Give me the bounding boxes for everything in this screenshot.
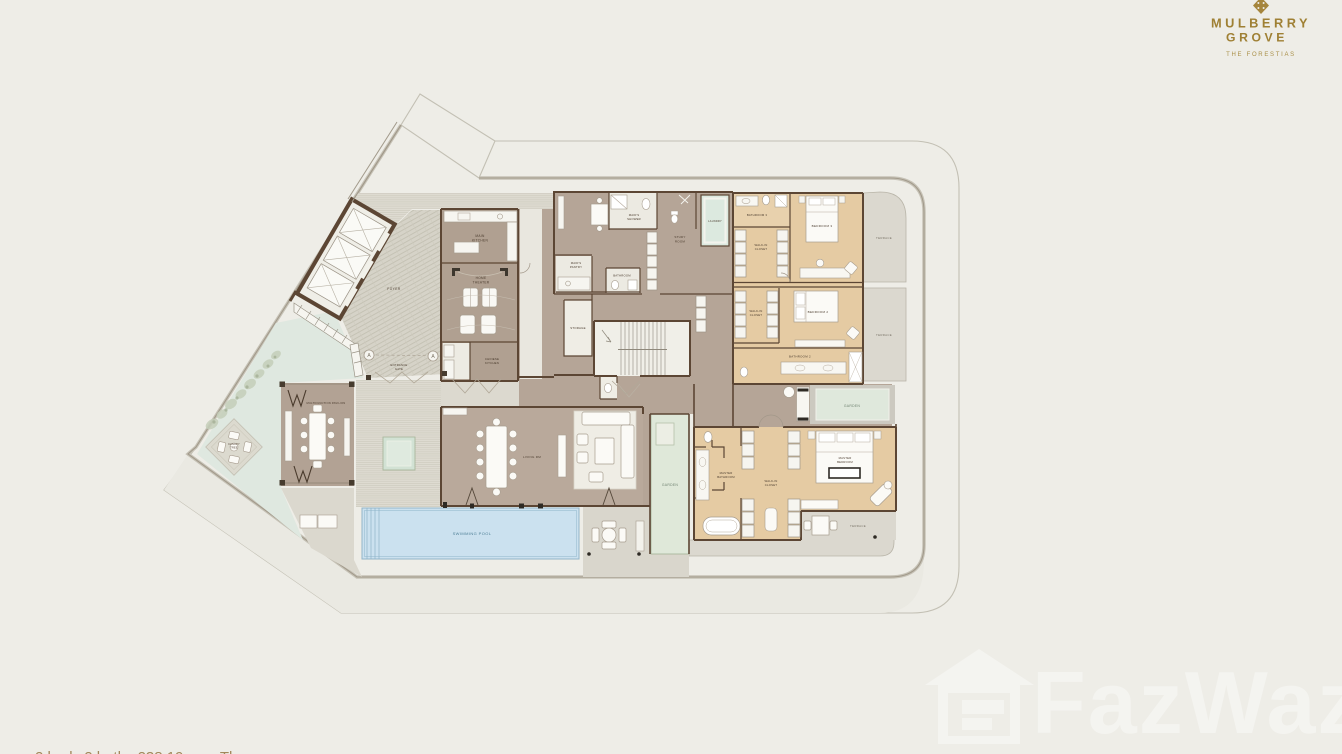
svg-text:CLOSET: CLOSET <box>750 313 762 317</box>
svg-text:BATHROOM 3: BATHROOM 3 <box>747 213 768 217</box>
svg-text:THEATER: THEATER <box>473 281 490 285</box>
svg-text:BEDROOM: BEDROOM <box>837 460 853 464</box>
svg-text:STORAGE: STORAGE <box>570 326 585 330</box>
svg-text:ROOM: ROOM <box>675 240 685 244</box>
svg-text:GARDEN: GARDEN <box>844 404 861 408</box>
svg-text:SHOWER: SHOWER <box>627 217 641 221</box>
svg-text:TREE: TREE <box>230 447 238 450</box>
svg-text:PANTRY: PANTRY <box>570 265 582 269</box>
svg-text:BATHROOM 2: BATHROOM 2 <box>789 355 811 359</box>
svg-text:KITCHEN: KITCHEN <box>485 361 499 365</box>
svg-text:TERRACE: TERRACE <box>876 236 892 240</box>
svg-text:HOME: HOME <box>476 276 487 280</box>
svg-text:MULTIFUNCTION PAVILION: MULTIFUNCTION PAVILION <box>307 401 346 405</box>
svg-text:THE FORESTIAS: THE FORESTIAS <box>1226 52 1296 58</box>
svg-text:GATE: GATE <box>395 367 403 371</box>
svg-text:FOYER: FOYER <box>387 287 401 291</box>
svg-text:LAUNDRY: LAUNDRY <box>708 219 722 223</box>
svg-text:MULBERRY: MULBERRY <box>1211 16 1311 31</box>
svg-text:BEDROOM 2: BEDROOM 2 <box>808 310 829 314</box>
svg-text:BATHROOM: BATHROOM <box>613 274 631 278</box>
svg-text:TERRACE: TERRACE <box>850 524 866 528</box>
svg-text:2 beds 2 baths 238.19 sqm: 2 beds 2 baths 238.19 sqm Th <box>35 749 237 754</box>
svg-text:TERRACE: TERRACE <box>876 333 892 337</box>
svg-text:BATHROOM: BATHROOM <box>717 475 735 479</box>
svg-text:CLOSET: CLOSET <box>755 247 767 251</box>
svg-text:GROVE: GROVE <box>1226 31 1288 45</box>
svg-text:BEDROOM 3: BEDROOM 3 <box>812 224 833 228</box>
svg-text:GARDEN: GARDEN <box>662 483 679 487</box>
svg-text:LIVING RM: LIVING RM <box>523 455 541 459</box>
svg-text:MAIN: MAIN <box>475 234 485 238</box>
svg-text:KITCHEN: KITCHEN <box>472 239 488 243</box>
svg-text:CLOSET: CLOSET <box>765 483 777 487</box>
svg-text:FazWaz: FazWaz <box>1032 653 1342 752</box>
svg-text:SWIMMING POOL: SWIMMING POOL <box>453 531 492 536</box>
svg-text:STUDY: STUDY <box>674 235 685 239</box>
